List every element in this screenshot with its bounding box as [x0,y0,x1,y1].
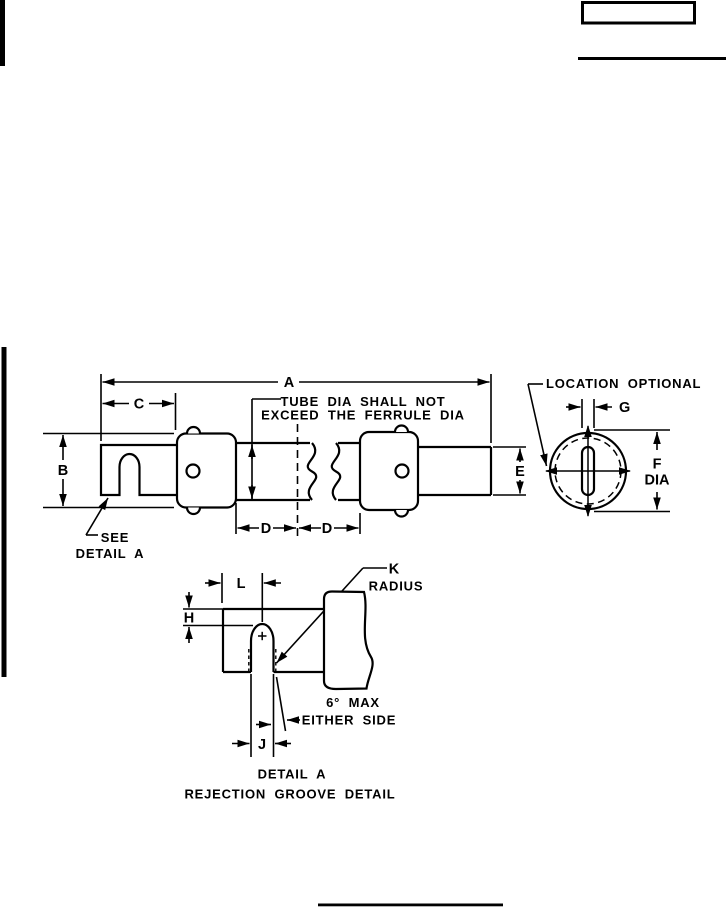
dim-label-j: J [258,737,266,753]
dim-label-g: G [619,400,630,416]
end-view: LOCATION OPTIONAL G F DIA [528,376,701,517]
dim-label-l: L [237,576,246,592]
left-ferrule-bottom-boss [187,508,200,515]
dim-label-f: F [653,457,662,473]
ferrule-body-section [324,592,373,690]
see-detail-note-line2: DETAIL A [76,546,145,561]
tube-break-line [308,443,317,500]
dim-label-b: B [58,463,68,479]
dim-label-k-radius: RADIUS [369,579,424,594]
rejection-groove-caption: REJECTION GROOVE DETAIL [184,787,395,802]
see-detail-note-line1: SEE [101,530,129,545]
dim-label-d-left: D [261,521,271,537]
page-number-box [583,3,695,24]
dim-label-k: K [389,562,400,578]
main-assembly-view: A C B D D E TUBE DIA SHALL NOT EXCEED TH… [43,374,526,561]
location-leader-arrow [528,384,547,466]
technical-drawing: A C B D D E TUBE DIA SHALL NOT EXCEED TH… [0,0,726,908]
taper-note-line2: EITHER SIDE [302,713,396,728]
dim-label-f-dia: DIA [645,473,671,489]
tube-break-line [332,443,341,500]
dim-label-a: A [284,375,295,391]
dim-label-h: H [184,611,194,627]
footer-rule [318,904,503,907]
rejection-groove-outline [251,624,274,672]
dim-label-e: E [515,464,525,480]
binder-mark-middle [2,347,7,677]
binder-mark-top [0,0,5,66]
end-tab-outline [101,445,177,495]
detail-a-caption: DETAIL A [258,767,327,782]
quadrant-mark-top [584,425,592,437]
taper-note-line1: 6° MAX [326,695,380,710]
header-rule [578,57,726,60]
tube-dia-note-line2: EXCEED THE FERRULE DIA [261,408,465,423]
dim-label-c: C [134,397,145,413]
location-optional-note: LOCATION OPTIONAL [546,376,701,391]
left-ferrule-top-boss [187,427,200,434]
right-ferrule-bottom-boss [395,510,408,517]
manual-page: A C B D D E TUBE DIA SHALL NOT EXCEED TH… [0,0,726,908]
right-ferrule-top-boss [395,426,408,433]
left-ferrule-hole [187,465,200,478]
taper-line [277,677,286,731]
detail-a-view: L H J K RADIUS 6° MAX EITHER SIDE DETAIL… [183,562,423,802]
quadrant-mark-bottom [584,505,592,517]
dim-label-d-right: D [322,521,332,537]
right-ferrule-hole [396,465,409,478]
